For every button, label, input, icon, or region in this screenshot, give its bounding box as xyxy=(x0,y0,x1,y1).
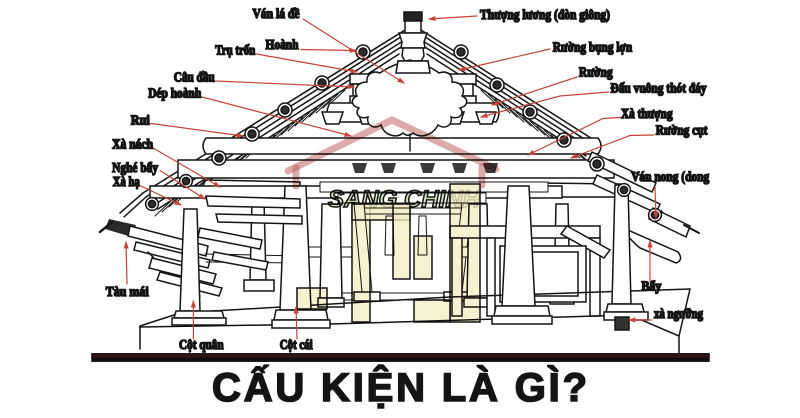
svg-text:Hoành: Hoành xyxy=(266,37,299,52)
svg-text:Rui: Rui xyxy=(131,113,150,128)
svg-text:Bẩy: Bẩy xyxy=(641,278,661,293)
svg-text:Cột cái: Cột cái xyxy=(280,337,313,352)
svg-text:Xà nách: Xà nách xyxy=(112,137,153,152)
svg-text:Rường cụt: Rường cụt xyxy=(656,123,708,138)
svg-text:Cột quân: Cột quân xyxy=(179,337,224,352)
svg-text:Nghé bẩy: Nghé bẩy xyxy=(112,160,158,175)
svg-text:Xà thượng: Xà thượng xyxy=(621,106,673,121)
svg-text:Dép hoành: Dép hoành xyxy=(148,86,201,101)
svg-text:Câu đầu: Câu đầu xyxy=(174,69,215,84)
svg-text:Ván nong (dong: Ván nong (dong xyxy=(631,169,709,184)
svg-text:Đấu vuông thót đáy: Đấu vuông thót đáy xyxy=(611,81,707,96)
svg-text:Rường: Rường xyxy=(579,65,613,80)
svg-text:Trụ trốn: Trụ trốn xyxy=(215,43,255,58)
svg-text:Ván lá đề: Ván lá đề xyxy=(253,6,300,21)
svg-text:Thượng lương (đòn giông): Thượng lương (đòn giông) xyxy=(480,7,610,22)
svg-text:xà ngưỡng: xà ngưỡng xyxy=(654,306,703,321)
svg-text:Xà hạ: Xà hạ xyxy=(113,174,140,189)
svg-text:CẤU KIỆN LÀ GÌ?: CẤU KIỆN LÀ GÌ? xyxy=(212,364,587,410)
svg-text:Tàu mái: Tàu mái xyxy=(106,284,149,299)
svg-text:Rường bụng lợn: Rường bụng lợn xyxy=(553,40,633,55)
